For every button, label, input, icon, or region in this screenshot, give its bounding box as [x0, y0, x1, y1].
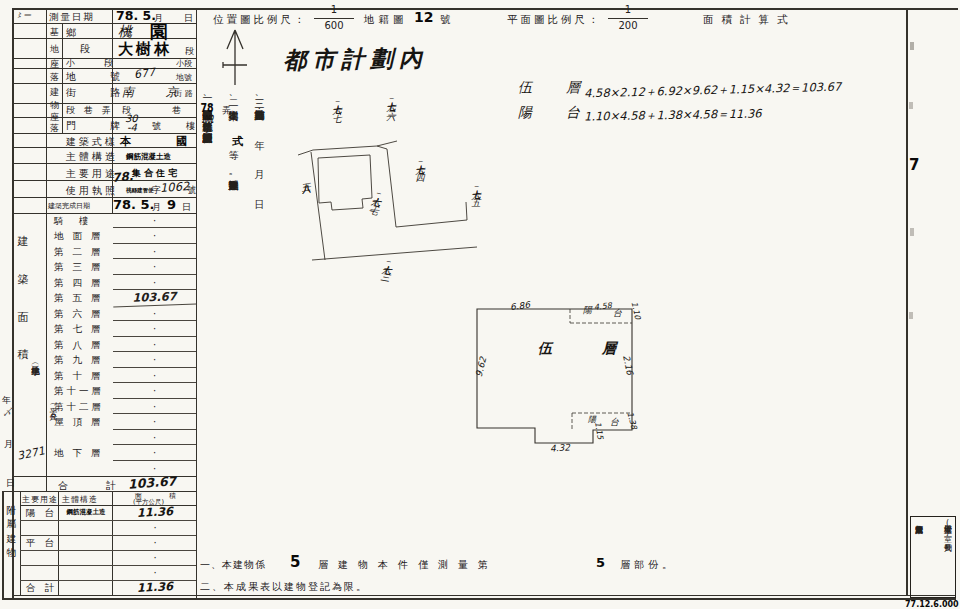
note-1-vertical: 一、本建物平面圖及建物面積係依使用執照78年桃縣建營使字第1062號設計圖或竣工… [200, 92, 214, 564]
attached-use [22, 550, 58, 565]
field-use-label: 主要用途 [66, 167, 118, 181]
margin-day: 日 [6, 477, 15, 490]
attached-use: 平 台 [22, 535, 58, 550]
floor-row-label: 第十一層 [54, 385, 104, 398]
attached-row: · [20, 550, 196, 566]
floor-row-label: 第 七 層 [54, 323, 104, 336]
survey-date-day: 日 [184, 12, 193, 25]
floor-row-label: 第 八 層 [54, 339, 104, 352]
floor-row-label: 第 四 層 [54, 277, 104, 290]
area-formula-label: 面積計算式 [703, 13, 796, 27]
lot-number-handwritten: 677 [133, 66, 155, 81]
floor-row-label: 第 十 層 [54, 370, 104, 383]
floor-row-fifth: 第 五 層103.67 [46, 290, 196, 306]
grid-h [12, 23, 196, 24]
floor-row-label: 第 九 層 [54, 354, 104, 367]
completion-date-stamp: 78. 5. [113, 197, 155, 212]
handwritten-corner-mark: 〻ー [15, 10, 31, 21]
location-scale-fraction-bar [314, 18, 354, 19]
field-structure-label: 主體構造 [66, 150, 118, 164]
bottom-note-1c: 層部份。 [620, 558, 676, 572]
floor-row: 第 四 層· [46, 275, 196, 290]
bottom-note-1-floors-stamp: 5 [290, 553, 300, 571]
floor-row: 屋 頂 層· [46, 414, 196, 430]
field-style-label: 建築式樣 [66, 135, 118, 149]
field-completion-label: 建築完成日期 [48, 201, 90, 211]
floor-row-value: · [113, 275, 196, 290]
floor-row-value: · [113, 430, 196, 445]
note-1-year-stamp: 78 [200, 102, 214, 114]
group-site-4: 落 [50, 71, 59, 84]
note-1-number-handwritten: 1062 [201, 114, 214, 125]
note-2-vertical: 二、本案建物與 等 建號建物無重複勘測。 [226, 92, 240, 342]
floor-plan-drawing [465, 295, 655, 460]
floor-row: 第 六 層· [46, 306, 196, 321]
attached-row: 陽 台 鋼筋混凝土造 11.36 [20, 505, 196, 521]
floor-row: 第 三 層· [46, 259, 196, 275]
floor-row-value: · [113, 306, 196, 321]
license-hao: 號 [187, 184, 196, 197]
section-suffix: 段 [185, 45, 194, 58]
floor-row-value: · [113, 445, 196, 461]
floor-row: 第 二 層· [46, 244, 196, 259]
floor-plan-room-label: 伍 層 [538, 340, 634, 358]
location-scale-numerator: 1 [316, 4, 352, 15]
floor-row-value: · [113, 259, 196, 275]
floor-row: 第 十 層· [46, 368, 196, 383]
city-plan-handwritten: 都市計劃內 [283, 43, 429, 77]
floor-row: 第 七 層· [46, 321, 196, 337]
note-3-vertical: 三、都市計劃發佈實施日期： 年 月 日 [252, 92, 266, 357]
dim-bottom-notch: 4.32 [550, 442, 571, 453]
street-suffix: 街路 [174, 88, 196, 99]
formula-floor-handwritten: 4.58×2.12＋6.92×9.62＋1.15×4.32＝103.67 [584, 80, 842, 102]
floor-row-label: 騎 樓 [54, 215, 92, 228]
formula-floor-label-handwritten: 伍 層 [518, 79, 590, 97]
floor-row: · [46, 430, 196, 445]
floor-row-value: · [113, 228, 196, 244]
cadastral-map-suffix: 號 [440, 13, 451, 27]
bottom-line-2 [2, 598, 956, 600]
floor-row-label: 第十二層 [54, 401, 104, 414]
attached-area: · [116, 520, 194, 535]
balcony-top-label-2: 台 [613, 307, 622, 320]
floor-row-value: · [113, 368, 196, 383]
township-handwritten: 桃 [118, 23, 132, 41]
door-hao: 號 [152, 120, 161, 133]
attached-total-row: 合 計 11.36 [20, 580, 196, 595]
field-subsection-label: 小 段 [66, 57, 123, 70]
floor-row-value: · [113, 399, 196, 414]
floor-row: 地 下 層· [46, 445, 196, 461]
approval-stamp-text-left: 本案依照分層負責規定 [914, 519, 923, 595]
floor-row-value: · [113, 337, 196, 352]
note-1-text-c: 號設計圖或竣工平面圖轉繪計算。 [202, 125, 213, 135]
attached-header-structure: 主體構造 [62, 494, 98, 505]
attached-total-label: 合 計 [22, 580, 58, 595]
floor-row: 第十一層· [46, 383, 196, 399]
structure-stamp: 鋼筋混凝土造 [126, 152, 171, 162]
attached-row: 平 台 · [20, 535, 196, 551]
door-number-handwritten-2: -4 [127, 122, 137, 133]
bottom-note-1b: 層建物本件僅測量第 [318, 558, 498, 572]
sketch-lot-label: 六七七－五 [469, 183, 482, 192]
right-margin-page-number: 7 [909, 156, 919, 174]
group-site-2: 地 [50, 43, 59, 56]
floor-row: 騎 樓· [46, 213, 196, 228]
location-sketch [285, 90, 495, 325]
print-code: 77.12.6.000 [905, 600, 959, 609]
floor-area-section-label: 建築面積 [14, 226, 29, 396]
balcony-bottom-label-2: 台 [610, 416, 619, 429]
sketch-lot-label: 六七七－二六 [384, 95, 397, 104]
floor-total-value-handwritten: 103.67 [128, 473, 177, 491]
north-arrow-icon [221, 27, 249, 89]
floor-row-label: 第 二 層 [54, 246, 104, 259]
floor-row-value-handwritten: 103.67 [113, 289, 197, 308]
floor-total-label: 合 計 [58, 479, 130, 493]
balcony-top-label-1: 陽 [583, 304, 592, 317]
field-section-label: 段 [80, 42, 90, 56]
floor-row: 第 八 層· [46, 337, 196, 352]
attached-use [22, 520, 58, 535]
floor-row: 地 面 層· [46, 228, 196, 244]
lot-suffix: 地號 [176, 72, 192, 83]
right-border [906, 8, 908, 595]
floor-row-label: 地 面 層 [54, 230, 104, 243]
location-scale-denominator: 600 [316, 20, 352, 31]
margin-mark [910, 42, 914, 50]
file-number-handwritten: 3271 [16, 444, 46, 463]
group-bldg-4: 落 [50, 122, 59, 135]
grid-h [12, 117, 196, 118]
margin-month: 月 [4, 438, 13, 451]
survey-date-label: 測量日期 [49, 11, 95, 24]
floor-row-label: 屋 頂 層 [54, 416, 104, 429]
floor-row-label: 地 下 層 [54, 447, 104, 460]
sketch-lot-label: 六七七－七 [330, 98, 343, 107]
group-bldg-1: 建 [50, 86, 59, 99]
plan-scale-numerator: 1 [610, 4, 646, 15]
floor-row-label: 第 六 層 [54, 308, 104, 321]
attached-section-label: 附屬建物 [4, 497, 18, 593]
floor-row-label: 第 五 層 [54, 292, 104, 305]
floor-row: 第十二層· [46, 399, 196, 414]
attached-area: · [116, 550, 194, 565]
attached-area: · [116, 535, 194, 550]
license-number-handwritten: 1062 [160, 179, 190, 195]
floor-row-value: · [113, 414, 196, 430]
bottom-note-1-part-stamp: 5 [596, 555, 605, 570]
formula-balcony-handwritten: 1.10×4.58＋1.38×4.58＝11.36 [584, 106, 762, 124]
attached-header-use: 主要用途 [22, 494, 58, 505]
completion-day-stamp: 9 [167, 197, 176, 212]
attached-use: 陽 台 [22, 505, 58, 520]
bottom-note-2: 二、本成果表以建物登記為限。 [200, 580, 368, 594]
group-site-3: 座 [50, 58, 59, 71]
plan-scale-label: 平面圖比例尺： [507, 13, 602, 27]
floor-row-value: · [113, 213, 196, 228]
file-number-prefix: 桃地二（建）字第 [30, 360, 42, 452]
approval-stamp-text-right: 授權主管股(室)長判發 [943, 519, 952, 595]
floor-row-value: · [113, 383, 196, 399]
formula-balcony-label-handwritten: 陽 台 [518, 104, 590, 122]
section-stamp: 大樹林 [118, 40, 172, 59]
bottom-note-1a: 一、本建物係 [200, 558, 266, 572]
sketch-lot-label: 六七七－四 [413, 158, 426, 167]
attached-structure-stamp: 鋼筋混凝土造 [60, 505, 112, 520]
floor-row: 第 九 層· [46, 352, 196, 368]
margin-mark [909, 312, 913, 319]
floor-row-label: 第 三 層 [54, 261, 104, 274]
field-lot-label: 地 號 [66, 70, 132, 84]
attached-row: · [20, 520, 196, 536]
field-township-label: 鄉 市 [66, 26, 150, 40]
plan-scale-fraction-bar [608, 18, 648, 19]
subsection-suffix: 小段 [176, 58, 192, 69]
attached-use [22, 565, 58, 580]
cadastral-map-number: 12 [414, 9, 433, 25]
margin-handwritten-mark: 〆 [3, 406, 12, 419]
floor-row-value: · [113, 321, 196, 337]
approval-stamp-box: 授權主管股(室)長判發 本案依照分層負責規定 [910, 516, 956, 598]
scanned-building-survey-form: 〻ー 測量日期 78. 5. 月 日 基 地 座 落 建 物 座 落 鄉 市 桃… [0, 0, 960, 609]
field-license-label: 使用執照 [66, 184, 118, 198]
location-scale-label: 位置圖比例尺： [213, 13, 308, 27]
field-lane-label: 段 巷 弄 [66, 104, 114, 117]
field-door-label: 門 牌 [66, 119, 132, 133]
group-site-1: 基 [50, 26, 59, 39]
balcony-top-width: 4.58 [594, 301, 613, 312]
margin-mark [910, 228, 914, 236]
attached-total-value-handwritten: 11.36 [116, 578, 195, 597]
use-stamp: 集合住宅 [132, 167, 180, 180]
margin-mark [909, 102, 913, 109]
license-year-handwritten: 78. [111, 169, 133, 185]
door-lou: 樓 [186, 120, 195, 133]
plan-scale-denominator: 200 [610, 20, 646, 31]
note-1-text-a: 一、本建物平面圖及建物面積係依使用執照 [202, 92, 213, 102]
bottom-line-1 [12, 595, 956, 596]
license-authority-stamp: 桃縣建管使 [126, 187, 154, 194]
floor-row-value: · [113, 244, 196, 259]
floor-row-value: · [113, 352, 196, 368]
cadastral-map-label: 地籍圖 [364, 13, 408, 27]
